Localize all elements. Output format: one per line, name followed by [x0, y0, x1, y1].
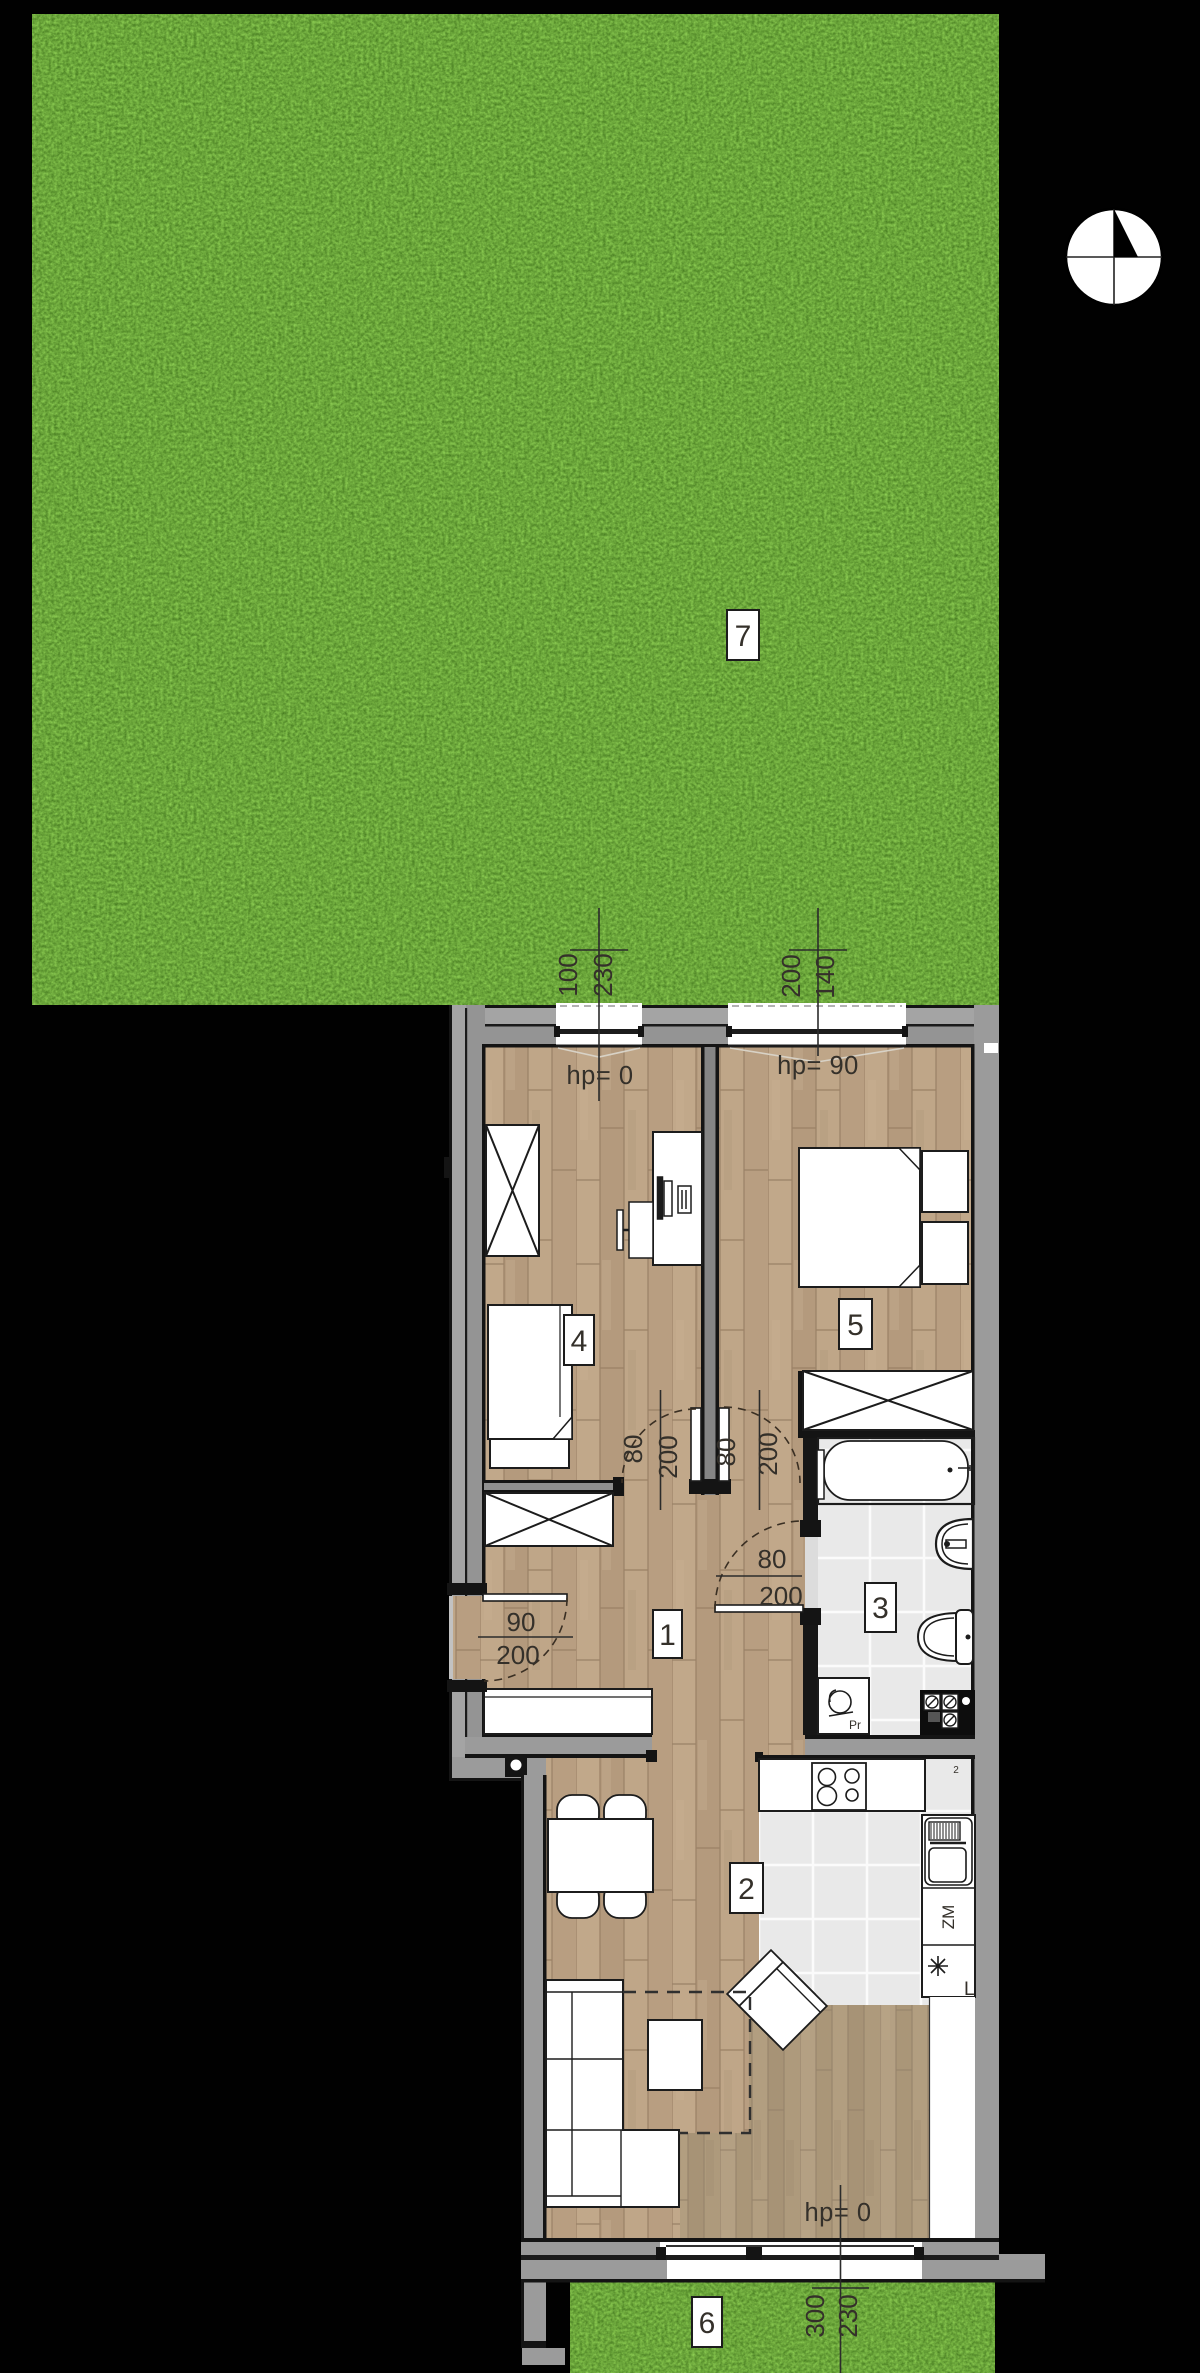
svg-text:200: 200	[653, 1435, 683, 1478]
svg-text:230: 230	[833, 2294, 863, 2337]
svg-text:2: 2	[738, 1873, 755, 1906]
svg-text:80: 80	[618, 1435, 648, 1464]
svg-text:hp= 0: hp= 0	[804, 2199, 871, 2227]
svg-text:80: 80	[758, 1544, 787, 1574]
svg-text:hp= 0: hp= 0	[566, 1062, 633, 1090]
svg-text:ZM: ZM	[939, 1905, 958, 1930]
svg-text:1: 1	[659, 1619, 676, 1652]
svg-text:3: 3	[872, 1592, 889, 1625]
svg-text:7: 7	[735, 620, 752, 653]
svg-text:300: 300	[800, 2294, 830, 2337]
svg-text:200: 200	[496, 1640, 539, 1670]
svg-text:L: L	[964, 1979, 975, 2000]
svg-text:200: 200	[776, 954, 806, 997]
svg-text:5: 5	[847, 1309, 864, 1342]
svg-text:2: 2	[953, 1765, 959, 1776]
svg-text:Pr: Pr	[849, 1718, 861, 1732]
svg-text:80: 80	[711, 1438, 741, 1467]
svg-text:90: 90	[507, 1607, 536, 1637]
svg-text:200: 200	[759, 1581, 802, 1611]
svg-text:hp= 90: hp= 90	[777, 1052, 859, 1080]
svg-text:6: 6	[699, 2307, 716, 2340]
svg-text:140: 140	[810, 955, 840, 998]
svg-text:200: 200	[753, 1432, 783, 1475]
svg-text:230: 230	[588, 953, 618, 996]
svg-text:100: 100	[553, 953, 583, 996]
svg-text:4: 4	[571, 1325, 588, 1358]
